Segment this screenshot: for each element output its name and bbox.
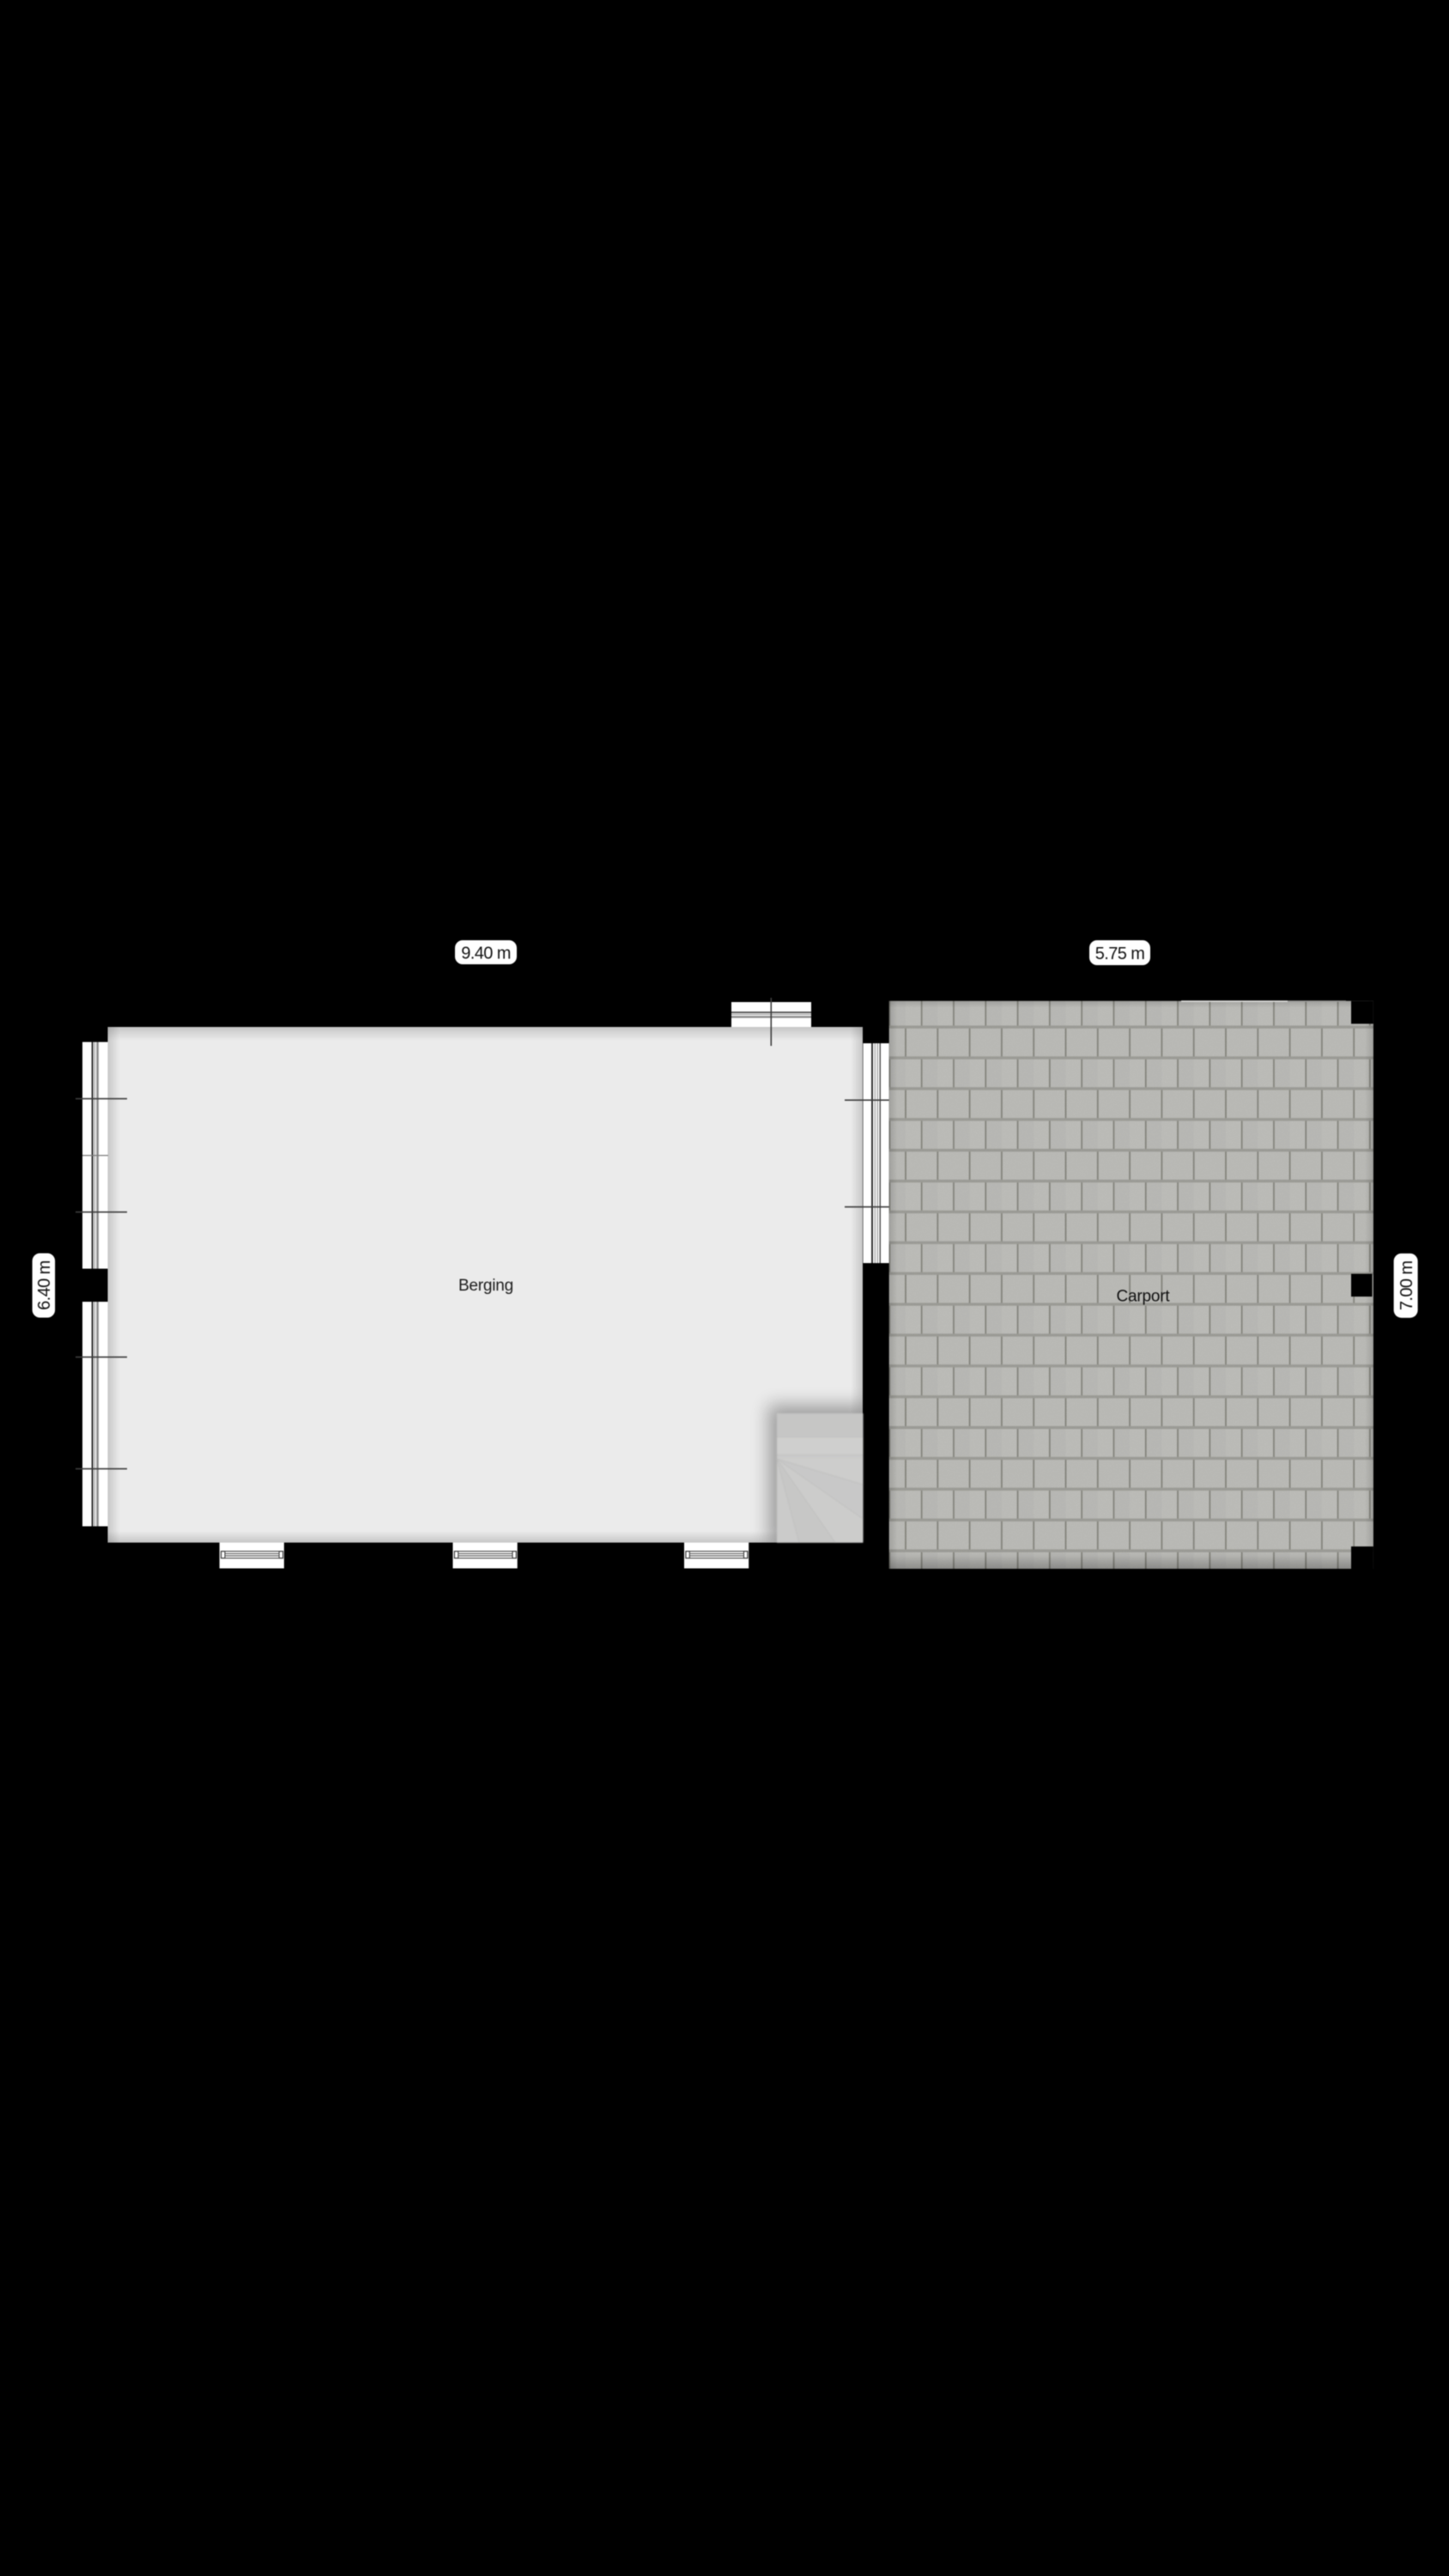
svg-text:9.40 m: 9.40 m — [461, 944, 511, 963]
svg-text:7.00 m: 7.00 m — [1397, 1261, 1416, 1310]
svg-text:Carport: Carport — [1117, 1288, 1171, 1306]
svg-text:5.75 m: 5.75 m — [1095, 945, 1145, 963]
svg-text:Berging: Berging — [458, 1277, 513, 1295]
svg-text:6.40 m: 6.40 m — [35, 1261, 54, 1310]
